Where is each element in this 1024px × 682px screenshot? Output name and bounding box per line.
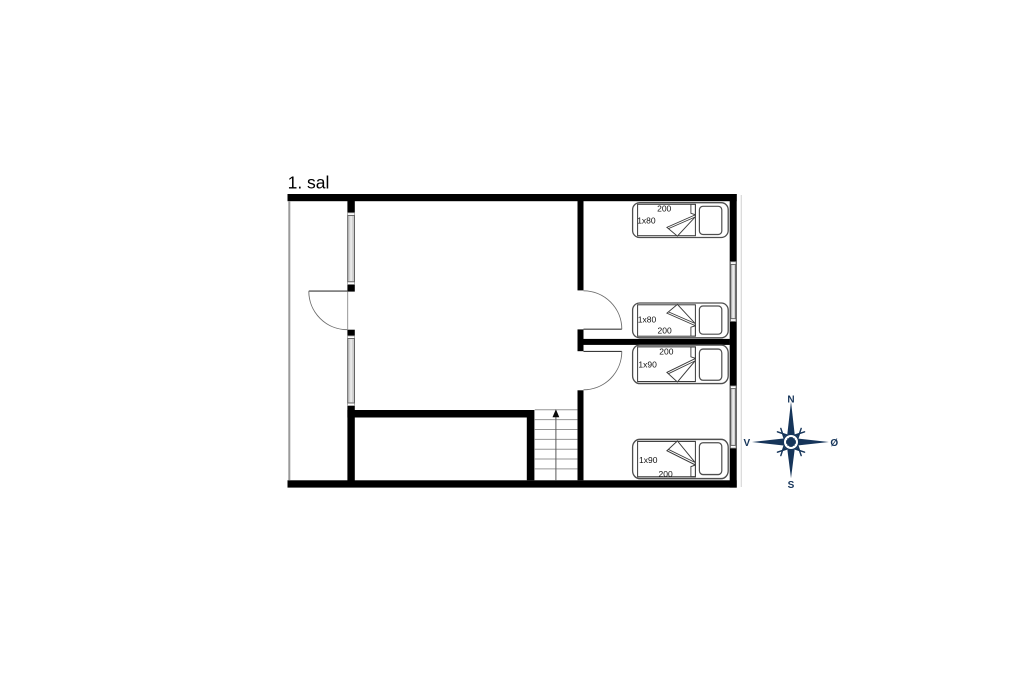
svg-text:S: S [788, 480, 795, 491]
svg-text:200: 200 [657, 203, 671, 213]
svg-text:V: V [743, 438, 750, 449]
svg-text:N: N [787, 394, 794, 405]
svg-text:200: 200 [659, 469, 673, 479]
svg-text:1. sal: 1. sal [288, 172, 330, 192]
svg-text:1x80: 1x80 [638, 314, 657, 324]
svg-text:1x90: 1x90 [638, 359, 657, 369]
svg-text:Ø: Ø [830, 438, 838, 449]
svg-text:200: 200 [658, 326, 672, 336]
svg-text:1x90: 1x90 [639, 455, 658, 465]
svg-text:1x80: 1x80 [637, 215, 656, 225]
svg-text:200: 200 [659, 347, 673, 357]
